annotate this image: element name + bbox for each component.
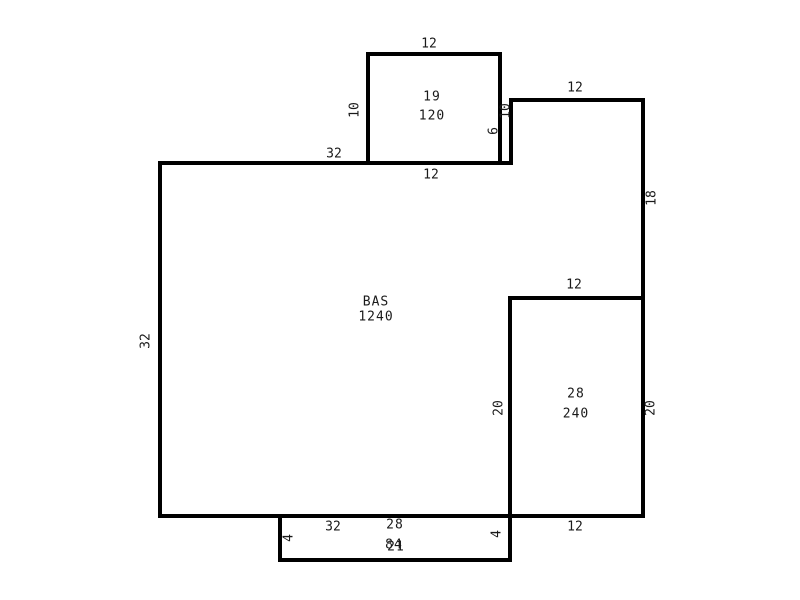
dim-room28-bottom: 12 xyxy=(567,521,583,534)
room28-name: 28 xyxy=(567,388,585,401)
dim-bas-bottom: 32 xyxy=(325,521,341,534)
bas-area: 1240 xyxy=(358,311,393,324)
room28-left-wall xyxy=(508,296,512,562)
dim-room19-top: 12 xyxy=(421,38,437,51)
bas-top-wall xyxy=(158,161,513,165)
dim-room19-right: 10 xyxy=(500,103,513,119)
dim-room28-left: 20 xyxy=(493,400,506,416)
floor-plan-canvas: 1210191201061212183232BAS124012282402020… xyxy=(0,0,800,600)
room28-top-wall xyxy=(508,296,645,300)
dim-room19-left: 10 xyxy=(349,102,362,118)
room19-left-wall xyxy=(366,52,370,165)
room19-area: 120 xyxy=(419,110,445,123)
dim-protrusion-right: 4 xyxy=(491,530,504,538)
right-outer-wall xyxy=(641,98,645,518)
protrusion-label-line2b: 21 xyxy=(387,541,405,554)
room19-top-wall xyxy=(366,52,502,56)
bas-left-wall xyxy=(158,161,162,518)
protrusion-label-line1: 28 xyxy=(386,519,404,532)
dim-room28-right: 20 xyxy=(645,400,658,416)
room19-name: 19 xyxy=(423,91,441,104)
dim-room28-top: 12 xyxy=(566,279,582,292)
bas-name: BAS xyxy=(363,296,389,309)
dim-bas-top: 32 xyxy=(326,148,342,161)
dim-bas-left: 32 xyxy=(140,333,153,349)
dim-room19-bottom: 12 xyxy=(423,169,439,182)
protrusion-bottom-wall xyxy=(278,558,512,562)
dim-protrusion-left: 4 xyxy=(283,534,296,542)
bas-extension-top-wall xyxy=(509,98,645,102)
dim-bas-notch: 6 xyxy=(488,127,501,135)
room28-area: 240 xyxy=(563,408,589,421)
dim-right-wall-upper: 18 xyxy=(646,190,659,206)
dim-bas-extension-top: 12 xyxy=(567,82,583,95)
